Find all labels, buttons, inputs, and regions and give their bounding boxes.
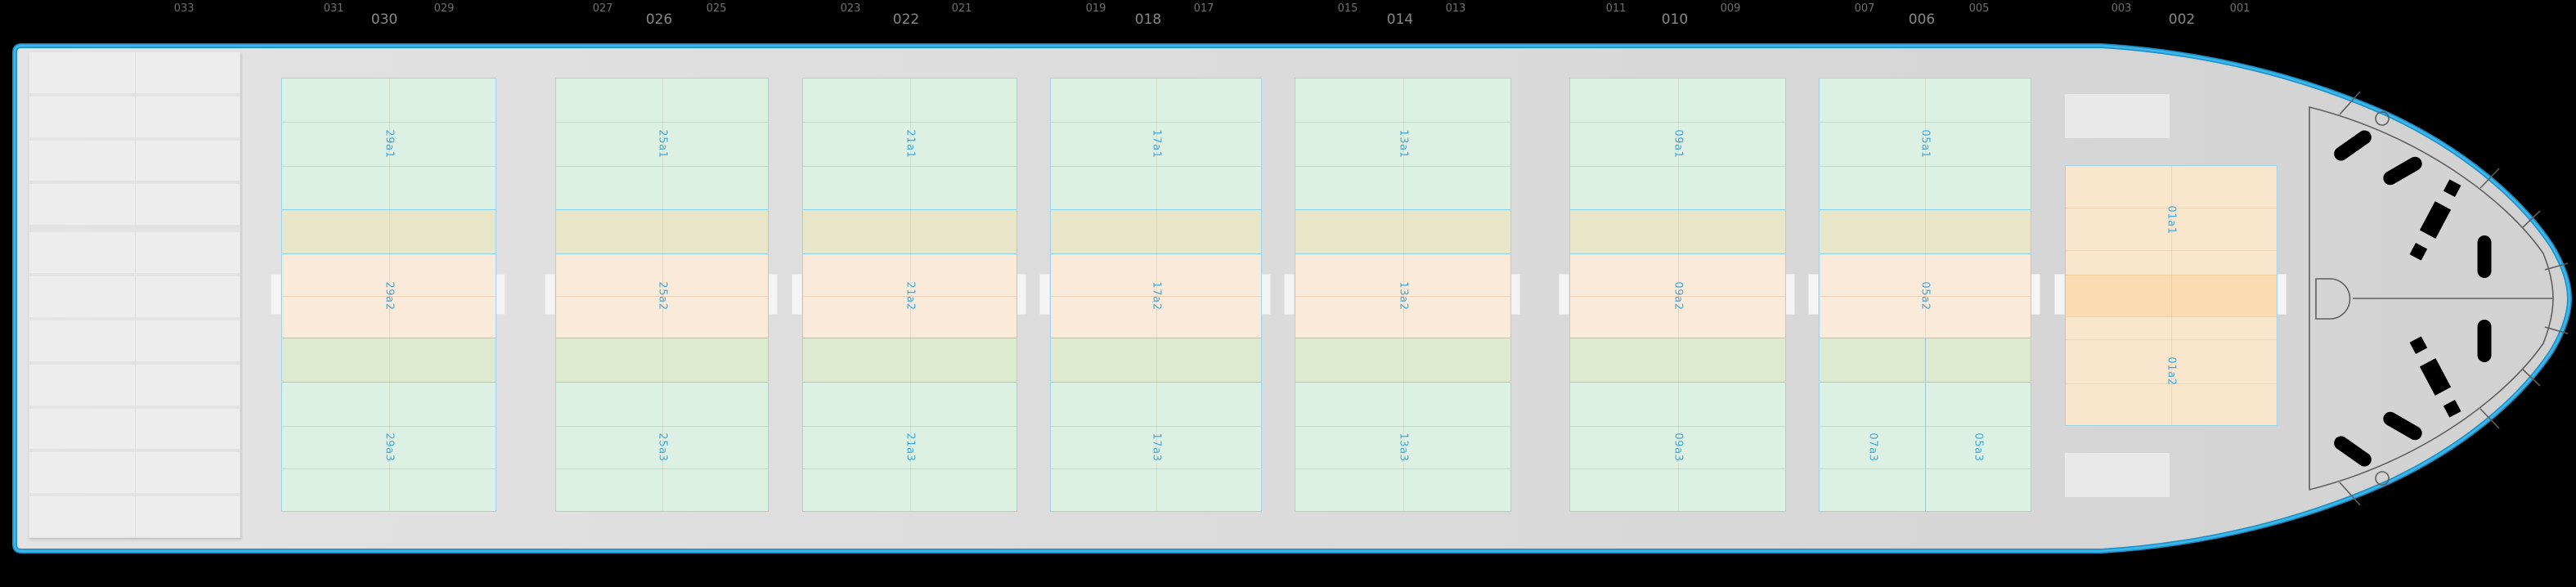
bay-number-025: 025: [707, 3, 727, 14]
hold-split-divider: [1925, 338, 1926, 511]
slot-line: [1051, 426, 1261, 427]
bay-number-019: 019: [1086, 3, 1106, 14]
slot-line: [556, 166, 768, 167]
hold-section[interactable]: [2066, 275, 2277, 316]
hold-slot-label: 01a1: [2165, 205, 2178, 234]
hold-slot-label: 13a3: [1397, 432, 1409, 461]
bay-number-002: 002: [2169, 13, 2195, 27]
stern-lane-row: [29, 276, 240, 318]
hold-slot-label: 09a2: [1672, 281, 1684, 310]
bay-number-027: 027: [593, 3, 613, 14]
bay-number-013: 013: [1446, 3, 1466, 14]
hold-slot-label: 17a3: [1150, 432, 1162, 461]
cargo-hold-21[interactable]: 21a121a221a3: [802, 78, 1017, 512]
bay-number-005: 005: [1969, 3, 1990, 14]
hold-slot-label: 21a2: [904, 281, 916, 310]
cargo-hold-17[interactable]: 17a117a217a3: [1050, 78, 1262, 512]
stern-lane-row: [29, 140, 240, 182]
hold-section[interactable]: [1295, 338, 1510, 382]
slot-line: [556, 426, 768, 427]
hold-slot-label: 29a3: [383, 432, 395, 461]
bay-number-022: 022: [893, 13, 919, 27]
stern-lane-grid: [29, 52, 240, 538]
slot-line: [1820, 166, 2031, 167]
hold-section[interactable]: [556, 209, 768, 253]
hold-section[interactable]: [282, 338, 496, 382]
hold-section[interactable]: 13a3: [1295, 382, 1510, 511]
hold-slot-label: 05a2: [1919, 281, 1932, 310]
cargo-hold-01[interactable]: 01a101a2: [2065, 165, 2278, 426]
cargo-hold-25[interactable]: 25a125a225a3: [555, 78, 769, 512]
stern-lane-divider: [135, 184, 136, 225]
stern-lane-row: [29, 320, 240, 362]
hold-section[interactable]: 05a2: [1820, 253, 2031, 338]
hold-section[interactable]: 21a2: [803, 253, 1016, 338]
slot-line: [1820, 122, 2031, 123]
hold-slot-label: 13a1: [1397, 129, 1409, 158]
hold-section[interactable]: 25a1: [556, 78, 768, 209]
slot-line: [803, 166, 1016, 167]
stern-lane-row: [29, 364, 240, 406]
stern-lane-row: [29, 231, 240, 274]
hatch-tab: [792, 274, 802, 315]
hold-slot-label: 07a3: [1866, 432, 1878, 461]
slot-line: [282, 426, 496, 427]
slot-line: [803, 122, 1016, 123]
bay-number-023: 023: [841, 3, 861, 14]
bay-number-029: 029: [434, 3, 455, 14]
hatch-tab: [1808, 274, 1819, 315]
bay-number-031: 031: [324, 3, 344, 14]
slot-line: [803, 426, 1016, 427]
cargo-hold-09[interactable]: 09a109a209a3: [1569, 78, 1786, 512]
hold-section[interactable]: 29a3: [282, 382, 496, 511]
bay-number-007: 007: [1855, 3, 1875, 14]
slot-line: [556, 468, 768, 469]
hatch-tab: [271, 274, 281, 315]
hold-section[interactable]: [1820, 209, 2031, 253]
slot-line: [282, 166, 496, 167]
hold-slot-label: 21a1: [904, 129, 916, 158]
hold-section[interactable]: 13a2: [1295, 253, 1510, 338]
slot-line: [282, 468, 496, 469]
hold-section[interactable]: [1570, 209, 1785, 253]
slot-line: [1295, 122, 1510, 123]
slot-line: [803, 468, 1016, 469]
stern-lane-row: [29, 451, 240, 494]
hold-section[interactable]: 25a3: [556, 382, 768, 511]
bay-number-003: 003: [2112, 3, 2132, 14]
bay-number-018: 018: [1135, 13, 1161, 27]
slot-line: [1570, 122, 1785, 123]
bay-number-015: 015: [1338, 3, 1358, 14]
bay-number-009: 009: [1721, 3, 1741, 14]
slot-line: [1051, 122, 1261, 123]
hold-section[interactable]: 09a3: [1570, 382, 1785, 511]
bay-number-014: 014: [1387, 13, 1413, 27]
bay-number-010: 010: [1662, 13, 1688, 27]
hold-slot-label: 13a2: [1397, 281, 1409, 310]
hold-slot-label: 09a3: [1672, 432, 1684, 461]
hold-section[interactable]: [1051, 338, 1261, 382]
hold-section[interactable]: [1051, 209, 1261, 253]
hold-slot-label: 05a3: [1972, 432, 1984, 461]
hold-section[interactable]: 25a2: [556, 253, 768, 338]
hold-slot-label: 17a2: [1150, 281, 1162, 310]
slot-line: [2066, 250, 2277, 251]
hold-section[interactable]: 01a2: [2066, 316, 2277, 425]
hold-section[interactable]: 05a1: [1820, 78, 2031, 209]
bay-number-006: 006: [1909, 13, 1935, 27]
stern-lane-divider: [135, 409, 136, 450]
bay-number-001: 001: [2230, 3, 2251, 14]
bay-number-026: 026: [646, 13, 672, 27]
bay-number-033: 033: [174, 3, 195, 14]
hold-section[interactable]: 29a2: [282, 253, 496, 338]
stern-lane-divider: [135, 96, 136, 137]
hold-slot-label: 29a1: [383, 129, 395, 158]
stern-lane-divider: [135, 141, 136, 181]
stern-lane-row: [29, 408, 240, 450]
slot-line: [1051, 468, 1261, 469]
stern-lane-row: [29, 96, 240, 138]
slot-line: [556, 122, 768, 123]
hold-section[interactable]: 17a3: [1051, 382, 1261, 511]
slot-line: [282, 122, 496, 123]
stern-lane-row: [29, 52, 240, 94]
hold-section[interactable]: [803, 209, 1016, 253]
stern-lane-divider: [135, 52, 136, 93]
stern-lane-divider: [135, 276, 136, 317]
deck-structure: [2065, 453, 2170, 497]
hold-slot-label: 25a2: [656, 281, 668, 310]
deck-structure: [2065, 94, 2170, 138]
hold-section[interactable]: [803, 338, 1016, 382]
hatch-tab: [1284, 274, 1295, 315]
stern-lane-divider: [135, 452, 136, 493]
hold-section[interactable]: 21a3: [803, 382, 1016, 511]
deck-plan-scene: 0330310290270250230210190170150130110090…: [0, 0, 2576, 587]
hold-slot-label: 01a2: [2165, 356, 2178, 385]
stern-lane-row: [29, 495, 240, 538]
slot-line: [1295, 468, 1510, 469]
hold-section[interactable]: [282, 209, 496, 253]
hold-section[interactable]: 29a1: [282, 78, 496, 209]
hold-section[interactable]: [556, 338, 768, 382]
stern-lane-divider: [135, 365, 136, 406]
stern-lane-divider: [135, 496, 136, 537]
hatch-tab: [1039, 274, 1050, 315]
hold-slot-label: 05a1: [1919, 129, 1932, 158]
slot-line: [1295, 166, 1510, 167]
hold-slot-label: 17a1: [1150, 129, 1162, 158]
hold-section[interactable]: 21a1: [803, 78, 1016, 209]
hold-slot-label: 09a1: [1672, 129, 1684, 158]
bay-number-030: 030: [371, 13, 397, 27]
bay-number-011: 011: [1606, 3, 1627, 14]
hold-section[interactable]: [1570, 338, 1785, 382]
bay-number-017: 017: [1194, 3, 1214, 14]
hold-slot-label: 25a3: [656, 432, 668, 461]
hold-slot-label: 29a2: [383, 281, 395, 310]
stern-lane-row: [29, 183, 240, 226]
slot-line: [1570, 426, 1785, 427]
hold-section[interactable]: 17a1: [1051, 78, 1261, 209]
cargo-hold-29[interactable]: 29a129a229a3: [281, 78, 496, 512]
hold-section[interactable]: 13a1: [1295, 78, 1510, 209]
slot-line: [2066, 339, 2277, 340]
cargo-hold-05[interactable]: 05a105a207a305a3: [1819, 78, 2031, 512]
hold-section[interactable]: 09a1: [1570, 78, 1785, 209]
slot-line: [1295, 426, 1510, 427]
bay-number-021: 021: [952, 3, 972, 14]
cargo-hold-13[interactable]: 13a113a213a3: [1295, 78, 1511, 512]
hold-slot-label: 25a1: [656, 129, 668, 158]
hatch-tab: [1559, 274, 1569, 315]
hold-slot-label: 21a3: [904, 432, 916, 461]
hold-section[interactable]: 09a2: [1570, 253, 1785, 338]
stern-lane-divider: [135, 320, 136, 361]
hold-section[interactable]: 17a2: [1051, 253, 1261, 338]
slot-line: [1570, 166, 1785, 167]
slot-line: [1570, 468, 1785, 469]
hatch-tab: [545, 274, 555, 315]
hold-section[interactable]: [1295, 209, 1510, 253]
slot-line: [1051, 166, 1261, 167]
stern-lane-divider: [135, 232, 136, 273]
hatch-tab: [2054, 274, 2065, 315]
hold-section[interactable]: 01a1: [2066, 166, 2277, 275]
